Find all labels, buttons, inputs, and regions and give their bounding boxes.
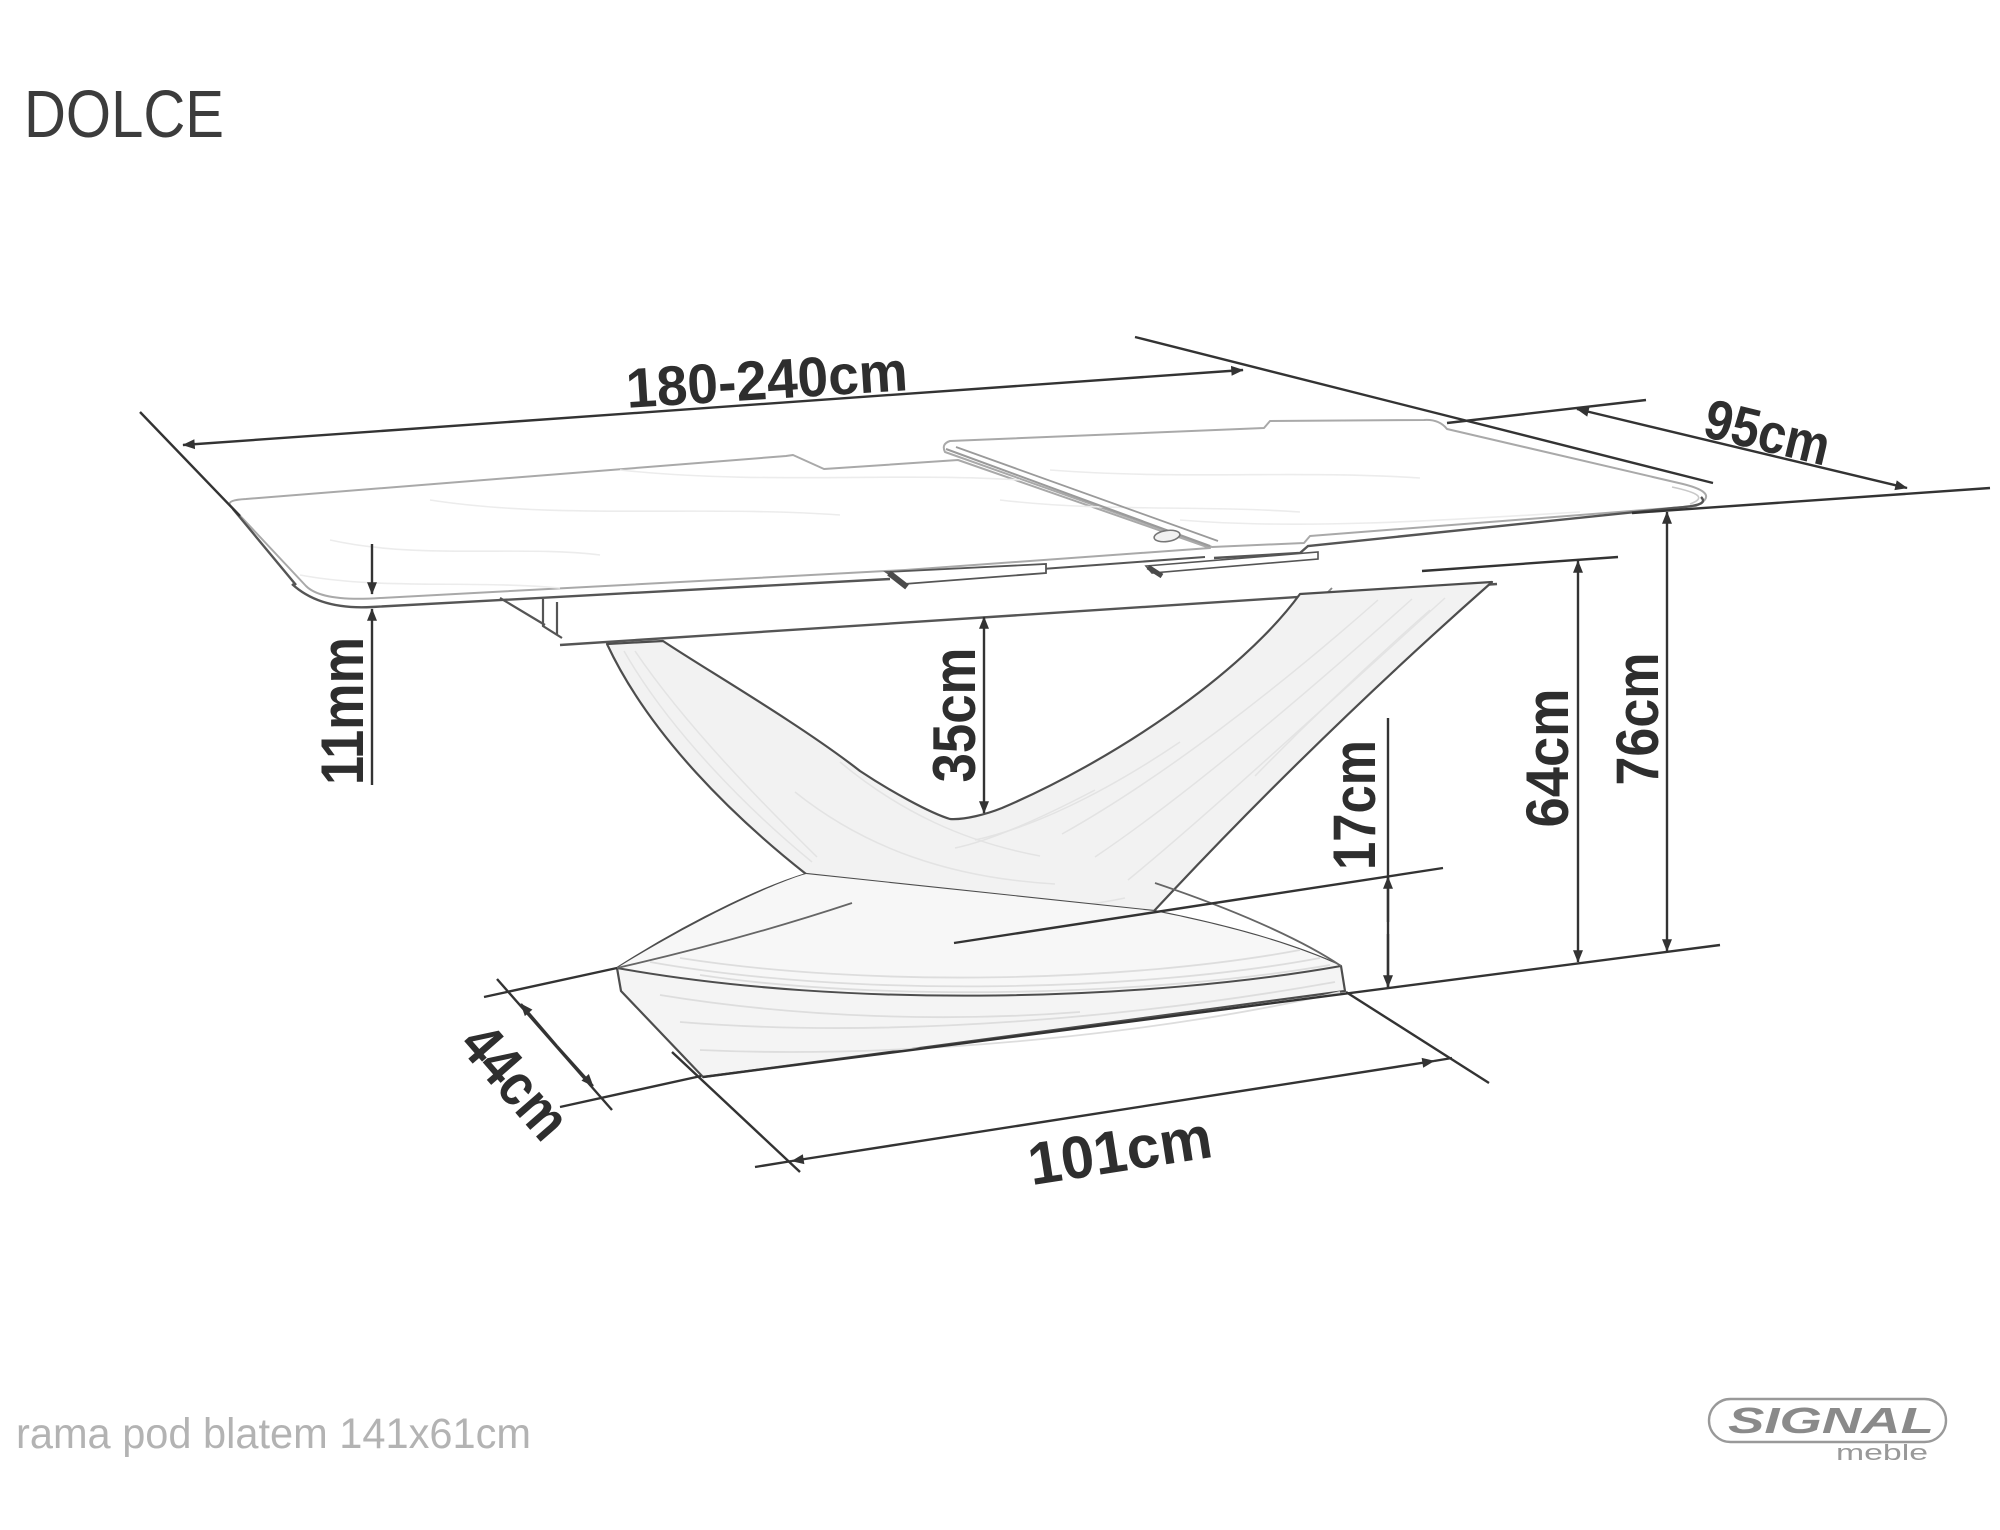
svg-text:95cm: 95cm	[1698, 387, 1836, 478]
svg-text:meble: meble	[1836, 1440, 1928, 1465]
svg-text:180-240cm: 180-240cm	[624, 339, 909, 420]
svg-text:35cm: 35cm	[921, 648, 988, 783]
svg-text:11mm: 11mm	[309, 637, 376, 785]
svg-text:76cm: 76cm	[1604, 653, 1671, 786]
svg-text:17cm: 17cm	[1321, 740, 1388, 870]
svg-text:DOLCE: DOLCE	[24, 77, 224, 152]
svg-text:101cm: 101cm	[1023, 1103, 1216, 1198]
svg-text:rama pod blatem 141x61cm: rama pod blatem 141x61cm	[16, 1410, 531, 1458]
svg-text:SIGNAL: SIGNAL	[1728, 1400, 1934, 1441]
svg-text:64cm: 64cm	[1514, 689, 1581, 828]
svg-text:44cm: 44cm	[448, 1011, 584, 1153]
